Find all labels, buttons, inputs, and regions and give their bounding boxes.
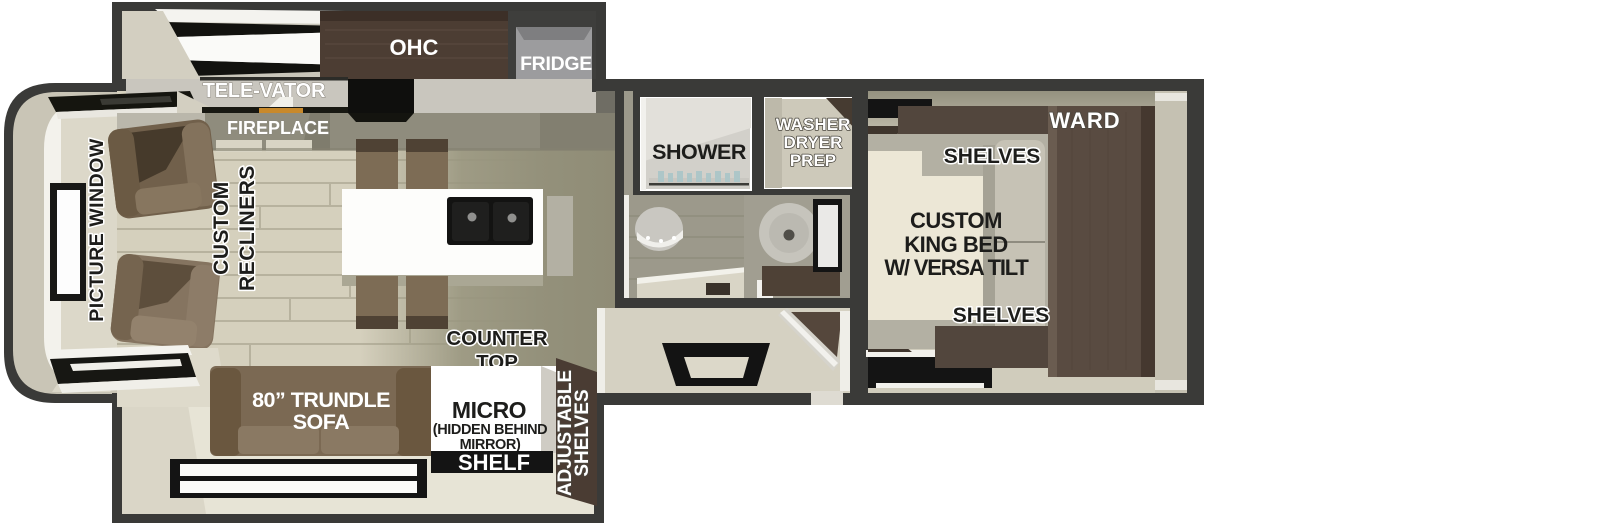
- svg-text:SOFA: SOFA: [293, 410, 350, 434]
- svg-text:FIREPLACE: FIREPLACE: [227, 118, 329, 138]
- svg-text:MICRO: MICRO: [452, 397, 526, 423]
- svg-text:SHELVES: SHELVES: [953, 304, 1049, 327]
- svg-text:WASHER: WASHER: [776, 115, 851, 134]
- svg-text:SHELVES: SHELVES: [572, 389, 593, 476]
- svg-text:OHC: OHC: [390, 35, 439, 60]
- svg-text:CUSTOM: CUSTOM: [210, 181, 233, 275]
- svg-text:WARD: WARD: [1049, 108, 1120, 133]
- svg-text:80” TRUNDLE: 80” TRUNDLE: [252, 388, 390, 412]
- svg-text:(HIDDEN BEHIND: (HIDDEN BEHIND: [433, 422, 547, 438]
- svg-text:DRYER: DRYER: [784, 133, 843, 152]
- svg-text:PREP: PREP: [790, 151, 836, 170]
- svg-text:SHELF: SHELF: [458, 450, 530, 475]
- svg-text:SHOWER: SHOWER: [652, 140, 747, 164]
- svg-text:SHELVES: SHELVES: [944, 145, 1040, 168]
- svg-text:KING BED: KING BED: [904, 232, 1008, 257]
- svg-text:CUSTOM: CUSTOM: [910, 208, 1002, 233]
- svg-text:TELE-VATOR: TELE-VATOR: [203, 80, 326, 102]
- svg-text:RECLINERS: RECLINERS: [236, 165, 259, 291]
- svg-text:PICTURE WINDOW: PICTURE WINDOW: [86, 138, 108, 322]
- svg-text:COUNTER: COUNTER: [446, 327, 548, 350]
- svg-text:W/ VERSA TILT: W/ VERSA TILT: [884, 255, 1029, 280]
- svg-text:FRIDGE: FRIDGE: [520, 53, 592, 75]
